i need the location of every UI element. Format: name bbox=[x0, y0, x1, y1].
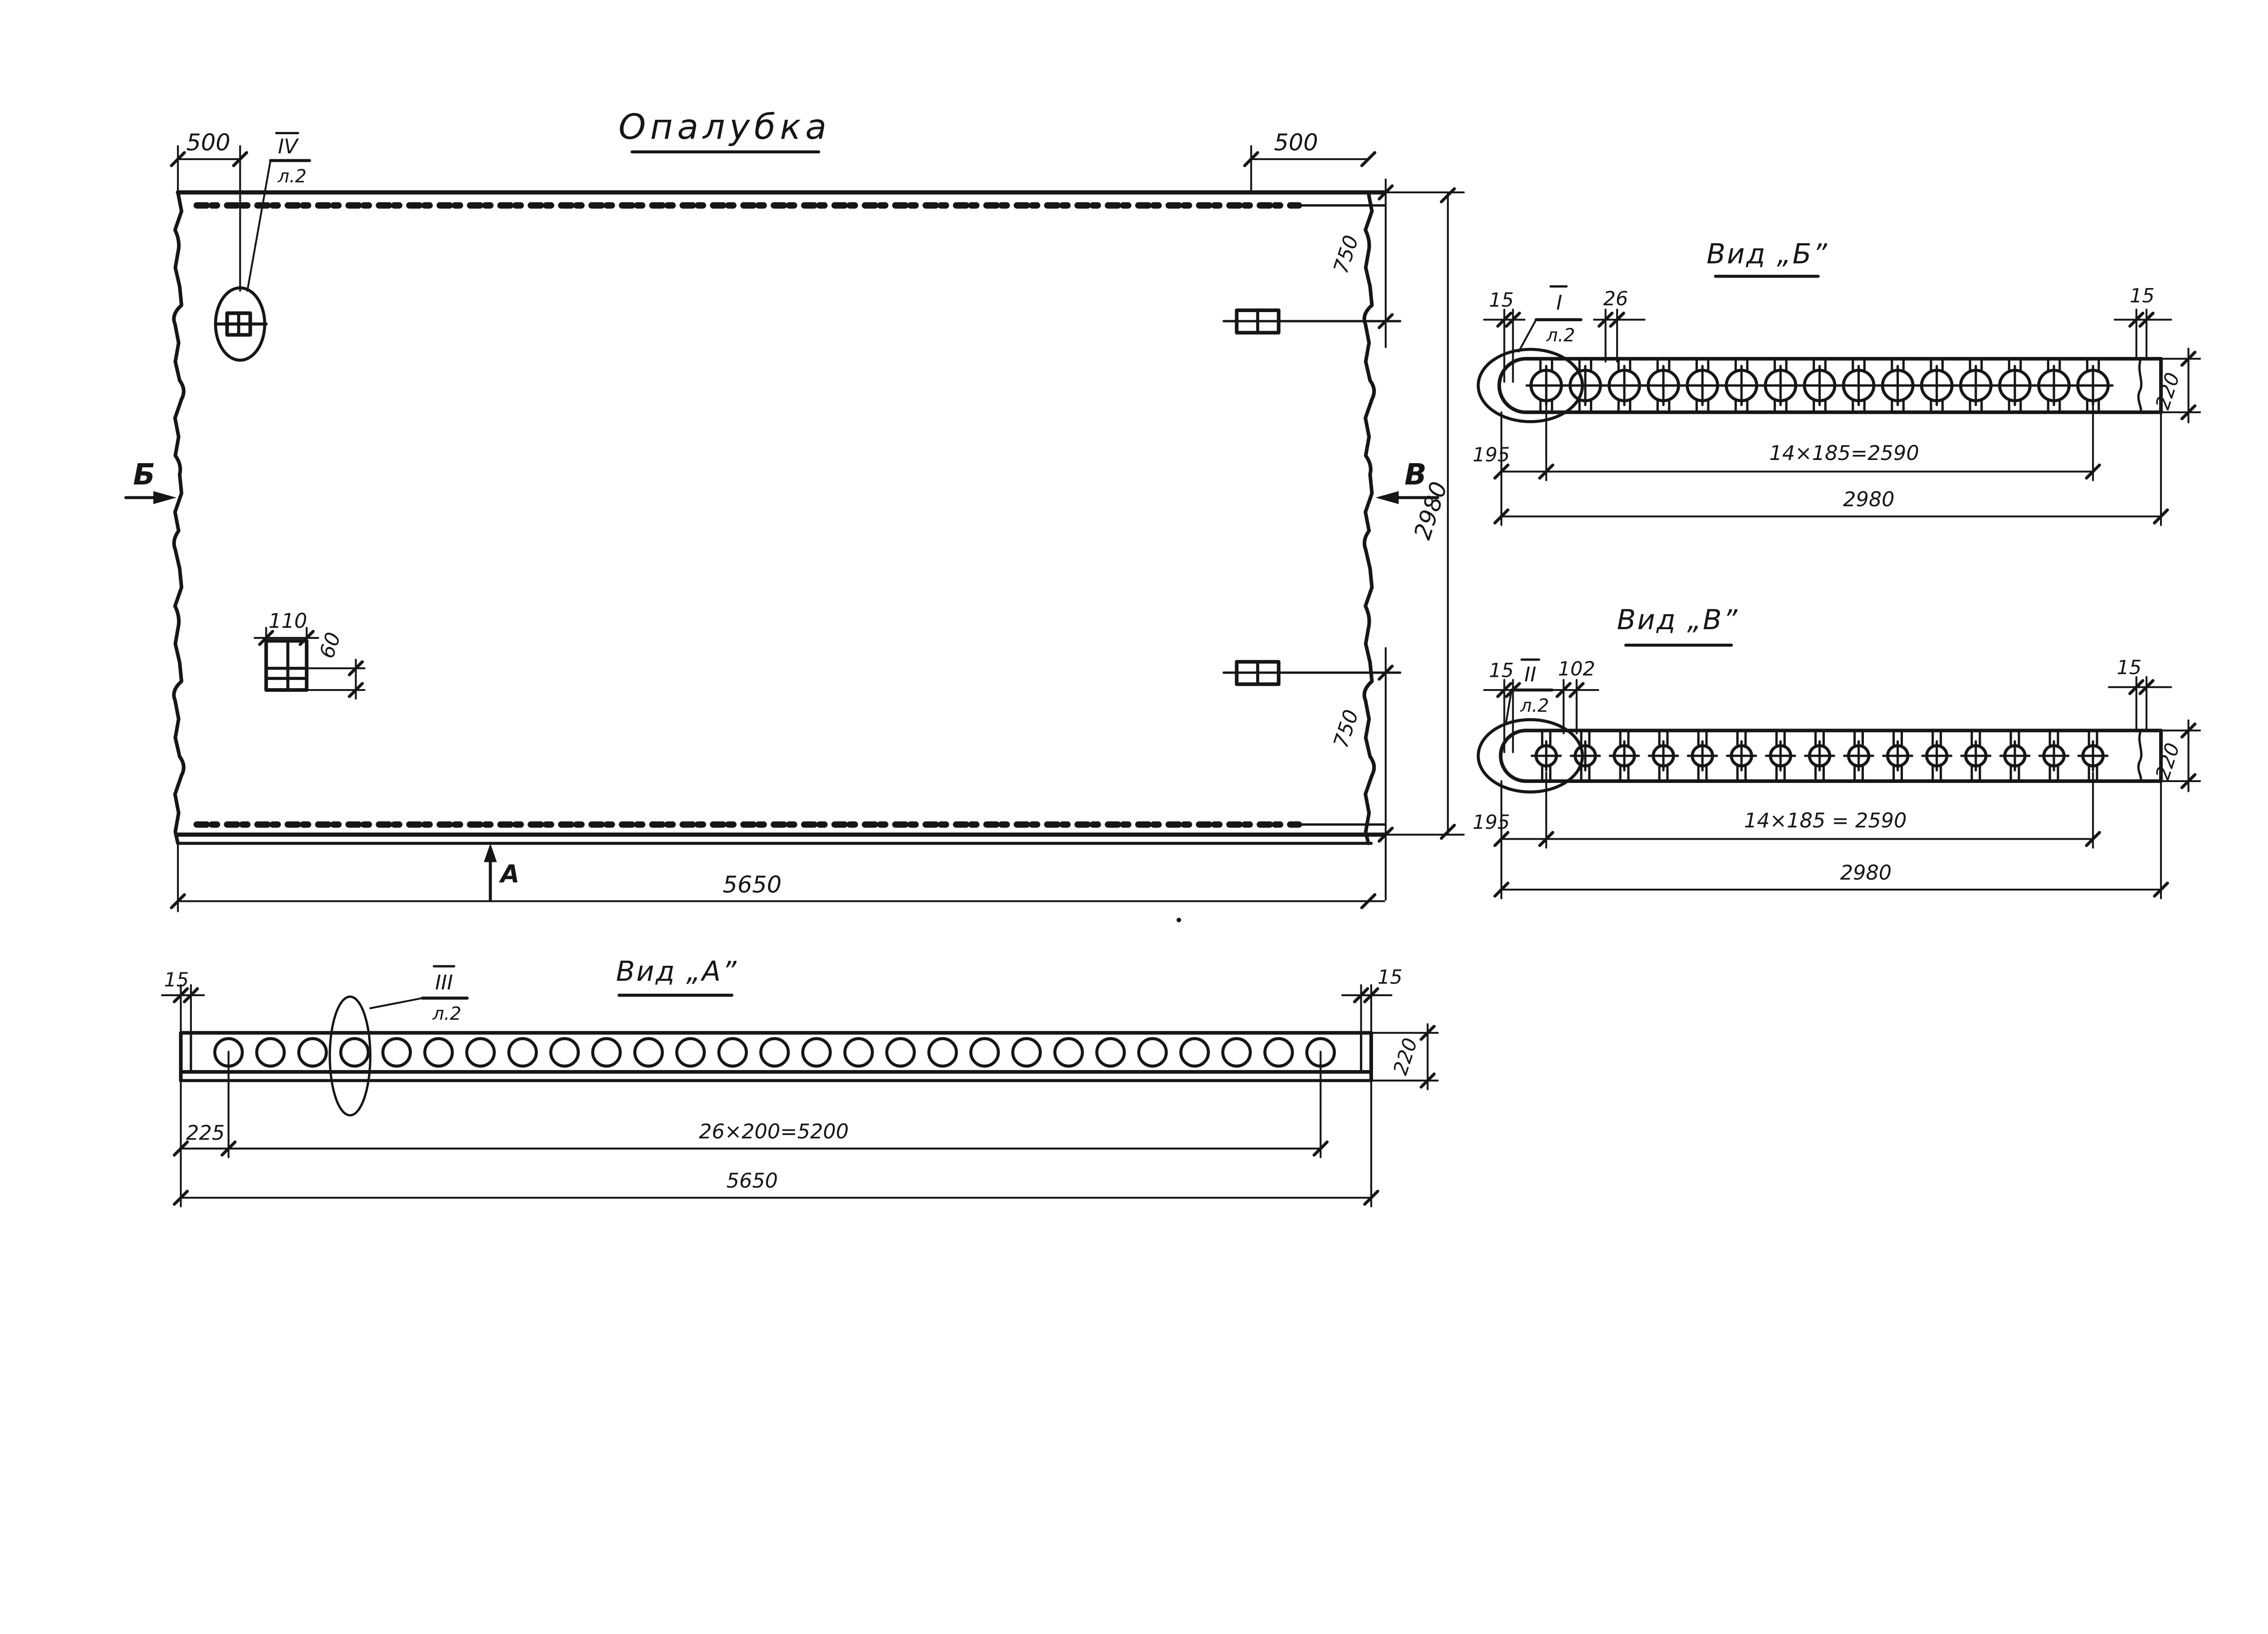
svg-text:26: 26 bbox=[1603, 288, 1628, 310]
plan-panel-edges bbox=[174, 192, 1384, 843]
hole bbox=[383, 1039, 411, 1067]
view-v-dim-15-left: 15 bbox=[1484, 659, 1525, 752]
view-v: Вид „В” II л.2 15 bbox=[1473, 604, 2200, 898]
hole bbox=[971, 1039, 998, 1067]
svg-text:750: 750 bbox=[1329, 232, 1364, 276]
dim-2980: 2980 bbox=[1840, 861, 1892, 885]
svg-text:15: 15 bbox=[1378, 966, 1403, 988]
hole bbox=[1013, 1039, 1041, 1067]
dim-bolts: 14×185=2590 bbox=[1769, 441, 1919, 465]
hole bbox=[467, 1039, 494, 1067]
view-a-holes bbox=[215, 1039, 1334, 1067]
plan-anchor-detail: 110 60 bbox=[254, 609, 364, 699]
callout-sheet: л.2 bbox=[432, 1003, 461, 1024]
view-v-bolts bbox=[1532, 730, 2107, 781]
hole bbox=[845, 1039, 873, 1067]
hole bbox=[551, 1039, 578, 1067]
view-a-strip bbox=[181, 1033, 1371, 1081]
svg-text:В: В bbox=[1404, 458, 1427, 492]
plan-tie-top-right bbox=[1224, 310, 1400, 333]
svg-text:Б: Б bbox=[133, 458, 155, 492]
scan-speck bbox=[1177, 918, 1181, 922]
arrow-left-icon bbox=[1376, 491, 1399, 504]
plan-marker-B-left: Б bbox=[126, 458, 176, 504]
svg-text:220: 220 bbox=[2151, 370, 2185, 412]
view-b-title: Вид „Б” bbox=[1706, 238, 1828, 270]
view-b-dim-15-left: 15 bbox=[1484, 289, 1525, 382]
arrow-up-icon bbox=[484, 843, 497, 862]
callout-ref: III bbox=[435, 971, 453, 994]
svg-text:102: 102 bbox=[1558, 658, 1595, 680]
svg-text:15: 15 bbox=[164, 969, 189, 992]
callout-ref: II bbox=[1525, 663, 1536, 686]
hole bbox=[1223, 1039, 1251, 1067]
hole bbox=[635, 1039, 663, 1067]
svg-text:750: 750 bbox=[1329, 707, 1364, 751]
hole bbox=[719, 1039, 747, 1067]
view-b-dim-26: 26 bbox=[1594, 288, 1645, 362]
callout-sheet: л.2 bbox=[1546, 325, 1575, 346]
view-a-dim-row: 225 26×200=5200 5650 bbox=[174, 1052, 1378, 1206]
callout-ref: I bbox=[1556, 291, 1562, 314]
svg-text:220: 220 bbox=[1389, 1035, 1422, 1078]
hole bbox=[677, 1039, 704, 1067]
arrow-right-icon bbox=[153, 491, 176, 504]
callout-sheet: л.2 bbox=[1520, 695, 1549, 716]
drawing-sheet: Опалубка 500 500 bbox=[0, 0, 2268, 1627]
dim-bolts: 14×185 = 2590 bbox=[1744, 809, 1907, 832]
dim-195: 195 bbox=[1473, 811, 1510, 834]
view-a-dim-15-right: 15 bbox=[1342, 966, 1403, 1032]
hole bbox=[299, 1039, 327, 1067]
break-line bbox=[2138, 359, 2141, 412]
callout-ref: IV bbox=[278, 135, 299, 158]
hole bbox=[1055, 1039, 1083, 1067]
hole bbox=[929, 1039, 957, 1067]
hole bbox=[593, 1039, 621, 1067]
view-a-dim-220: 220 bbox=[1371, 1024, 1438, 1089]
dim-2980: 2980 bbox=[1843, 488, 1895, 511]
svg-text:15: 15 bbox=[1489, 289, 1514, 312]
dim-holes: 26×200=5200 bbox=[699, 1120, 849, 1144]
plan-dim-5650: 5650 bbox=[171, 843, 1384, 911]
svg-text:15: 15 bbox=[2116, 656, 2141, 679]
view-b: Вид „Б” I л.2 15 bbox=[1473, 238, 2200, 525]
plan-dim-750-bottom: 750 bbox=[1329, 648, 1392, 900]
plan-dim-500-right: 500 bbox=[1245, 130, 1375, 192]
view-b-bolts bbox=[1527, 359, 2112, 412]
hole bbox=[1139, 1039, 1167, 1067]
dim-195: 195 bbox=[1473, 444, 1510, 466]
dim-225: 225 bbox=[186, 1121, 225, 1145]
view-v-dim-102: 102 bbox=[1548, 658, 1598, 734]
svg-text:60: 60 bbox=[315, 629, 345, 661]
hole bbox=[1181, 1039, 1208, 1067]
svg-text:15: 15 bbox=[2130, 284, 2155, 307]
svg-text:А: А bbox=[499, 860, 519, 888]
hole bbox=[887, 1039, 914, 1067]
callout-sheet: л.2 bbox=[277, 166, 306, 187]
svg-text:220: 220 bbox=[2151, 740, 2185, 783]
view-b-dim-rows: 195 14×185=2590 2980 bbox=[1473, 402, 2168, 525]
svg-text:15: 15 bbox=[1489, 659, 1514, 682]
plan-right-edge-zigzag bbox=[1364, 192, 1374, 843]
view-v-dim-15-right: 15 bbox=[2109, 656, 2171, 730]
svg-text:5650: 5650 bbox=[723, 871, 782, 898]
view-v-dim-rows: 195 14×185 = 2590 2980 bbox=[1473, 773, 2168, 898]
plan-title: Опалубка bbox=[619, 107, 831, 147]
hole bbox=[257, 1039, 284, 1067]
hole bbox=[1265, 1039, 1293, 1067]
hole bbox=[341, 1039, 368, 1067]
view-a-dim-15-left: 15 bbox=[162, 969, 204, 1033]
plan-callout-IV: IV л.2 bbox=[215, 133, 309, 360]
plan-view: Опалубка 500 500 bbox=[126, 107, 1464, 911]
view-a: Вид „А” III л.2 15 bbox=[162, 956, 1437, 1206]
dim-5650: 5650 bbox=[726, 1169, 778, 1193]
plan-left-edge-zigzag bbox=[174, 192, 184, 843]
svg-text:500: 500 bbox=[1274, 130, 1318, 157]
svg-text:110: 110 bbox=[269, 609, 307, 633]
hole bbox=[509, 1039, 537, 1067]
plan-marker-A-bottom: А bbox=[484, 843, 520, 900]
svg-text:500: 500 bbox=[186, 130, 230, 157]
break-line bbox=[2138, 730, 2141, 781]
hole bbox=[425, 1039, 453, 1067]
hole bbox=[803, 1039, 831, 1067]
callout-ellipse bbox=[330, 997, 370, 1115]
tie-symbol-in-circle bbox=[215, 313, 266, 335]
hole bbox=[1097, 1039, 1124, 1067]
view-a-title: Вид „А” bbox=[616, 956, 738, 988]
plan-dim-2980: 2980 bbox=[1384, 189, 1464, 838]
view-b-dim-15-right: 15 bbox=[2115, 284, 2171, 358]
view-b-strip bbox=[1499, 359, 2161, 412]
view-v-strip bbox=[1501, 730, 2161, 781]
hole bbox=[761, 1039, 788, 1067]
view-v-title: Вид „В” bbox=[1617, 604, 1739, 636]
drawing-canvas: Опалубка 500 500 bbox=[0, 0, 2268, 1627]
